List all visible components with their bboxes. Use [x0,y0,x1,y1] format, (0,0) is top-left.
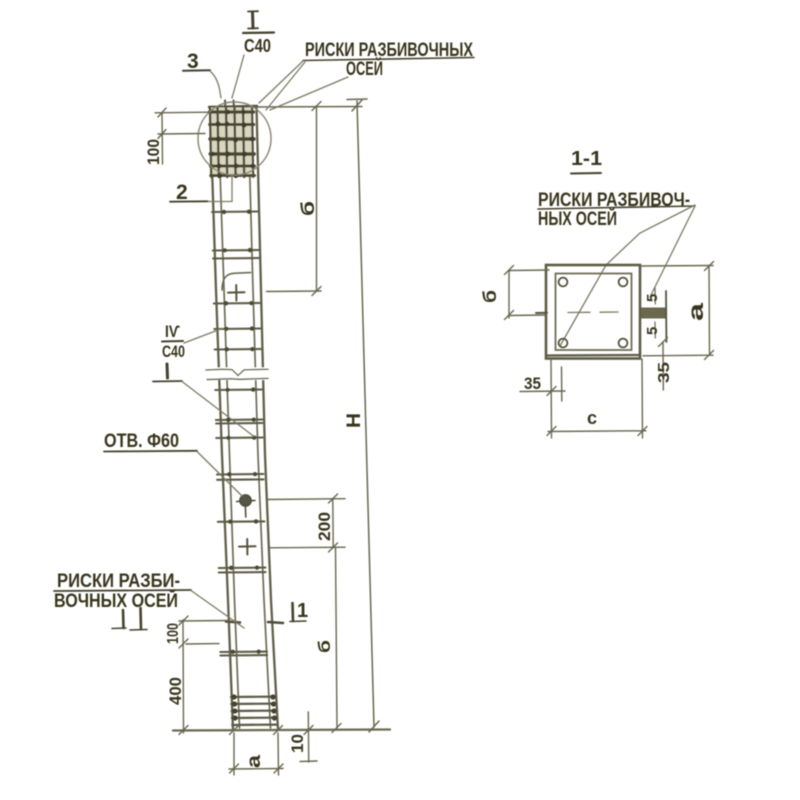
svg-text:б: б [315,640,334,653]
svg-text:а: а [685,303,708,321]
svg-text:С40: С40 [244,36,271,56]
svg-text:5: 5 [644,327,661,335]
svg-text:б: б [480,290,500,303]
svg-text:а: а [244,754,265,768]
svg-text:100: 100 [165,623,182,644]
svg-text:1: 1 [297,600,308,622]
svg-text:РИСКИ РАЗБИ-: РИСКИ РАЗБИ- [57,571,180,592]
svg-text:100: 100 [144,139,163,165]
svg-text:ОСЕЙ: ОСЕЙ [346,58,383,80]
svg-text:НЫХ ОСЕЙ: НЫХ ОСЕЙ [538,208,617,230]
svg-text:б: б [298,201,318,216]
svg-text:400: 400 [166,677,185,705]
svg-text:35: 35 [656,362,673,383]
svg-text:С40: С40 [162,342,185,361]
svg-text:35: 35 [524,374,541,393]
svg-text:ВОЧНЫХ ОСЕЙ: ВОЧНЫХ ОСЕЙ [54,590,178,612]
svg-text:1-1: 1-1 [571,148,602,170]
svg-text:200: 200 [315,512,334,541]
svg-text:с: с [587,408,597,428]
svg-text:ІѴ: ІѴ [165,322,180,341]
svg-text:5: 5 [644,294,661,302]
svg-text:Н: Н [344,413,365,428]
svg-text:2: 2 [176,181,188,204]
svg-text:ОТВ. Ф60: ОТВ. Ф60 [104,431,179,452]
svg-text:10: 10 [288,734,307,753]
